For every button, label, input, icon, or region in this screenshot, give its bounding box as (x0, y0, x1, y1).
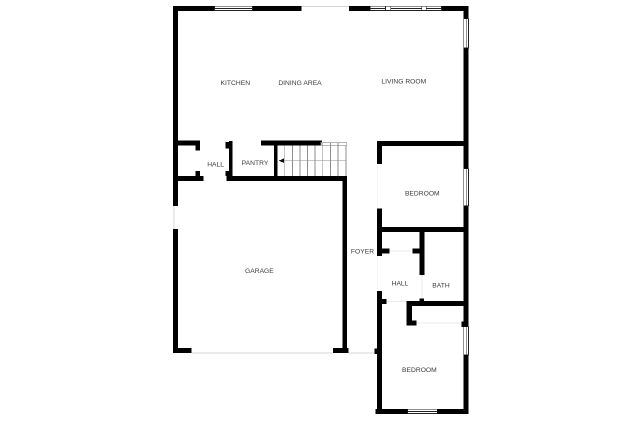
svg-text:BATH: BATH (432, 283, 450, 290)
svg-text:GARAGE: GARAGE (245, 268, 274, 275)
svg-text:BEDROOM: BEDROOM (402, 367, 437, 374)
svg-text:HALL: HALL (392, 281, 409, 288)
svg-text:BEDROOM: BEDROOM (405, 191, 440, 198)
svg-text:LIVING ROOM: LIVING ROOM (381, 79, 426, 86)
svg-text:FOYER: FOYER (351, 249, 374, 256)
svg-text:HALL: HALL (207, 162, 224, 169)
svg-text:KITCHEN: KITCHEN (221, 80, 251, 87)
svg-text:DINING AREA: DINING AREA (278, 80, 322, 87)
svg-text:PANTRY: PANTRY (242, 160, 269, 167)
